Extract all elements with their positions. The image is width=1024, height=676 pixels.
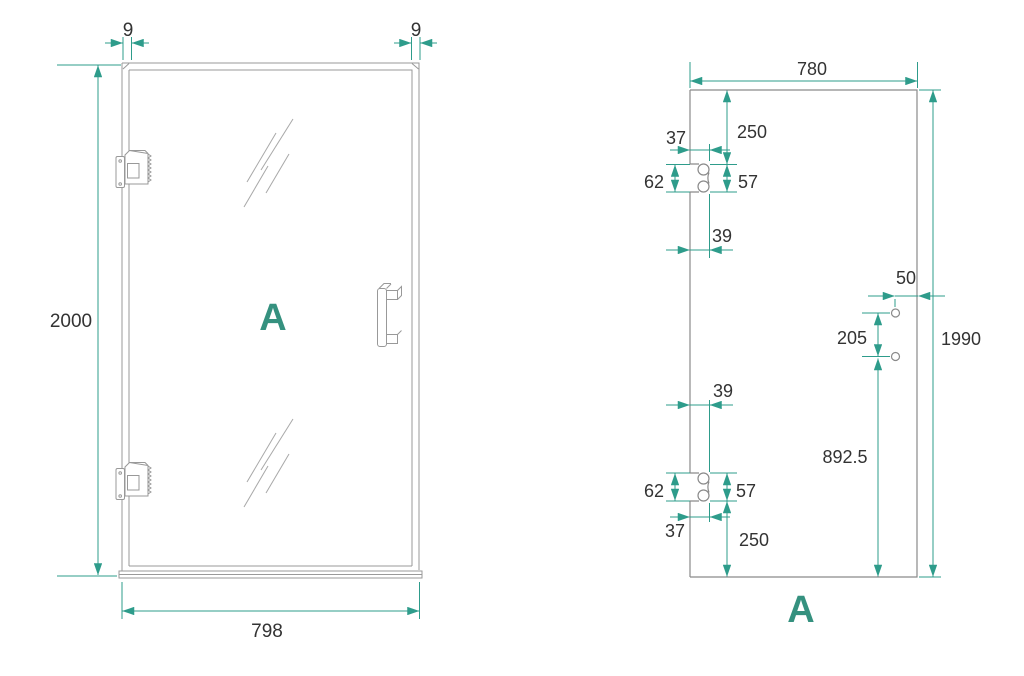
hinge-top — [116, 151, 151, 188]
glass-panel-view: 780 1990 250 37 62 57 — [644, 59, 981, 631]
dim-bottom-to-hinge-250: 250 — [739, 530, 769, 550]
hinge-cutout-bottom — [690, 473, 709, 501]
hinge-cutout-top — [690, 164, 709, 192]
dim-hinge-depth-bottom-37: 37 — [665, 521, 685, 541]
view-label-a-left: A — [259, 297, 286, 339]
dim-hinge-span-bottom-57: 57 — [736, 481, 756, 501]
technical-drawing-page: A 9 9 2000 798 — [0, 0, 1024, 676]
door-handle — [378, 284, 402, 347]
dim-panel-width-780: 780 — [797, 59, 827, 79]
dim-hinge-span-top-57: 57 — [738, 172, 758, 192]
dim-panel-height-1990: 1990 — [941, 329, 981, 349]
handle-hole-top — [892, 309, 900, 317]
dim-edge-to-hole-top-39: 39 — [712, 226, 732, 246]
dim-top-right-9: 9 — [411, 20, 422, 41]
dim-hole-edge-offset-50: 50 — [896, 268, 916, 288]
dim-edge-to-hole-bottom-39: 39 — [713, 381, 733, 401]
shower-door-drawing: A 9 9 2000 798 — [0, 0, 1024, 676]
dim-hinge-outer-bottom-62: 62 — [644, 481, 664, 501]
door-sill — [119, 571, 422, 578]
glass-panel-outline — [690, 90, 917, 577]
dim-top-left-9: 9 — [123, 20, 134, 41]
dim-top-to-hinge-250: 250 — [737, 122, 767, 142]
dim-hole-spacing-205: 205 — [837, 328, 867, 348]
dim-height-2000: 2000 — [50, 311, 92, 332]
dim-width-798: 798 — [251, 621, 283, 642]
dim-hole-to-bottom-892-5: 892.5 — [822, 447, 867, 467]
hinge-bottom — [116, 463, 151, 500]
panel-dimensions: 780 1990 250 37 62 57 — [644, 59, 981, 577]
dim-hinge-depth-top-37: 37 — [666, 128, 686, 148]
dim-hinge-outer-top-62: 62 — [644, 172, 664, 192]
handle-hole-bottom — [892, 353, 900, 361]
view-label-a-right: A — [787, 589, 814, 631]
door-elevation-view: A 9 9 2000 798 — [50, 20, 437, 642]
